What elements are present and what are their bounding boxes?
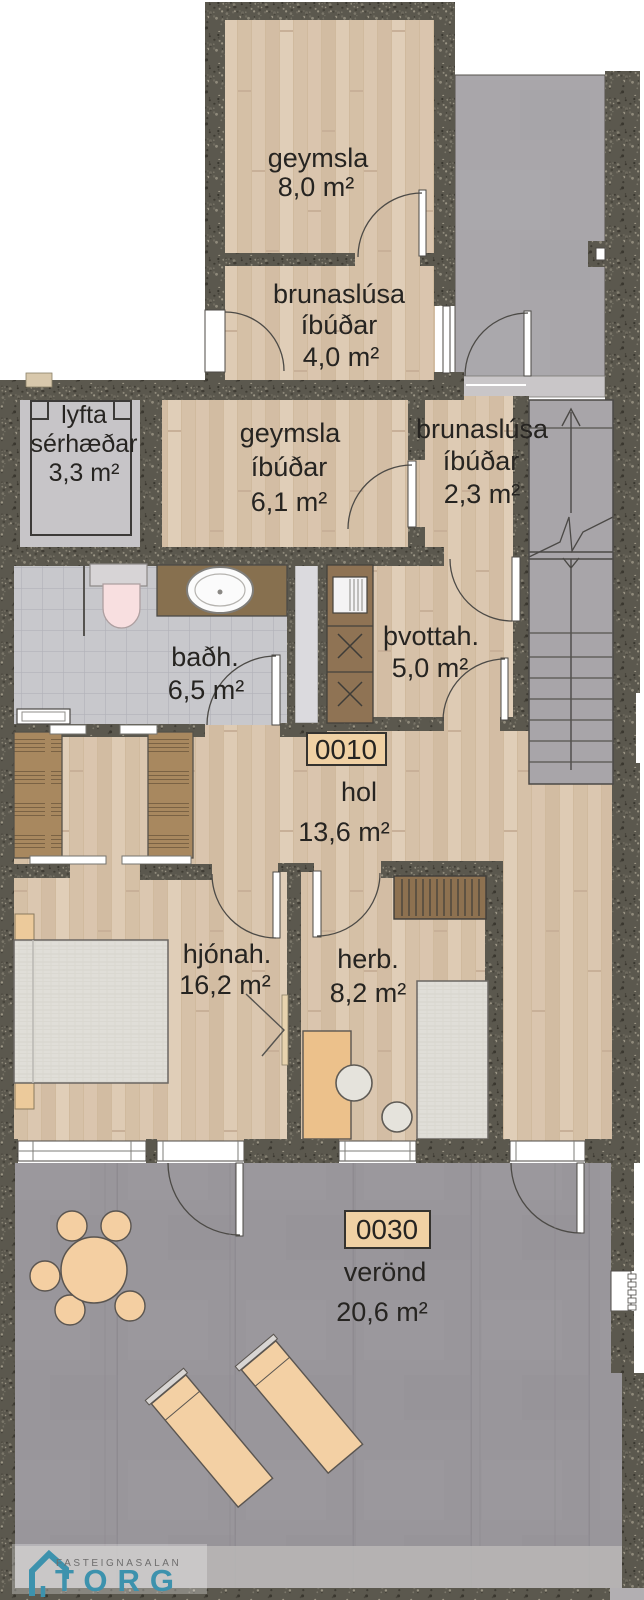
svg-text:íbúðar: íbúðar: [301, 310, 378, 340]
svg-text:herb.: herb.: [337, 944, 399, 974]
svg-text:8,2 m²: 8,2 m²: [330, 978, 407, 1008]
svg-text:íbúðar: íbúðar: [251, 452, 328, 482]
svg-text:brunaslúsa: brunaslúsa: [273, 279, 406, 309]
svg-text:TORG: TORG: [55, 1563, 184, 1598]
svg-text:0010: 0010: [315, 734, 377, 765]
svg-text:13,6 m²: 13,6 m²: [298, 817, 390, 847]
svg-text:þvottah.: þvottah.: [383, 621, 479, 651]
svg-text:hol: hol: [341, 777, 377, 807]
svg-text:verönd: verönd: [344, 1257, 427, 1287]
svg-text:geymsla: geymsla: [240, 418, 342, 448]
svg-text:2,3 m²: 2,3 m²: [444, 479, 521, 509]
svg-text:0030: 0030: [356, 1214, 418, 1245]
svg-text:geymsla: geymsla: [268, 143, 370, 173]
svg-text:3,3 m²: 3,3 m²: [49, 459, 120, 487]
svg-text:5,0 m²: 5,0 m²: [392, 653, 469, 683]
svg-text:hjónah.: hjónah.: [183, 939, 272, 969]
svg-text:lyfta: lyfta: [61, 401, 107, 429]
svg-text:sérhæðar: sérhæðar: [31, 430, 138, 458]
svg-text:íbúðar: íbúðar: [443, 446, 520, 476]
svg-text:20,6 m²: 20,6 m²: [336, 1297, 428, 1327]
svg-text:6,1 m²: 6,1 m²: [251, 487, 328, 517]
svg-text:4,0 m²: 4,0 m²: [303, 342, 380, 372]
svg-text:brunaslúsa: brunaslúsa: [416, 414, 549, 444]
svg-text:16,2 m²: 16,2 m²: [179, 970, 271, 1000]
svg-text:baðh.: baðh.: [171, 642, 239, 672]
svg-text:8,0 m²: 8,0 m²: [278, 172, 355, 202]
svg-text:6,5 m²: 6,5 m²: [168, 675, 245, 705]
